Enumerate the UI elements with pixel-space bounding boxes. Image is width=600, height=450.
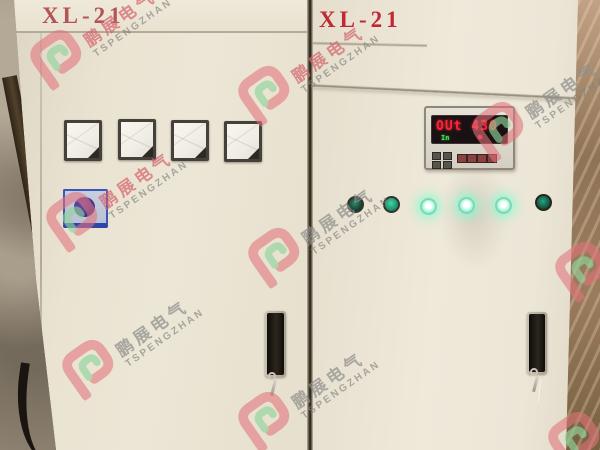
left-cabinet-model-label: XL-21: [42, 3, 125, 29]
right-door-key[interactable]: [530, 368, 538, 376]
controller-button[interactable]: [432, 152, 441, 160]
rotary-switch-knob[interactable]: [74, 197, 95, 217]
left-door-handle[interactable]: [265, 311, 286, 377]
indicator-light: [535, 194, 552, 211]
led-readout: OUt 430: [436, 119, 498, 134]
door-smudge: [439, 160, 509, 270]
analog-meter: [224, 121, 262, 162]
indicator-light: [458, 197, 475, 214]
controller-button[interactable]: [432, 161, 441, 169]
led-status-dot: [478, 135, 482, 139]
rotary-switch[interactable]: [63, 189, 108, 228]
indicator-light: [347, 196, 364, 213]
left-door-key[interactable]: [268, 372, 276, 380]
controller-button[interactable]: [443, 152, 452, 160]
cabinet-gap: [307, 0, 313, 450]
analog-meter: [171, 120, 209, 161]
indicator-light: [383, 196, 400, 213]
controller-button-red[interactable]: [457, 154, 467, 163]
indicator-light: [495, 197, 512, 214]
key-thread: [538, 380, 541, 402]
led-sub-indicator: In: [441, 134, 449, 142]
controller-button[interactable]: [443, 161, 452, 169]
indicator-light: [420, 198, 437, 215]
analog-meter: [118, 119, 156, 160]
controller-button-red[interactable]: [477, 154, 487, 163]
right-cabinet-model-label: XL-21: [319, 7, 402, 33]
right-door-handle[interactable]: [527, 312, 547, 374]
right-panel-seam-upper: [311, 42, 427, 47]
right-panel-seam-main: [311, 84, 579, 100]
controller-button-red[interactable]: [487, 154, 497, 163]
analog-meter: [64, 120, 102, 161]
led-display: OUt 430 In: [431, 115, 508, 144]
controller-button-red[interactable]: [467, 154, 477, 163]
photo-control-cabinets: XL-21 XL-21 OUt 430 In: [0, 0, 600, 450]
digital-temperature-controller[interactable]: OUt 430 In: [424, 106, 515, 170]
right-cabinet: XL-21 OUt 430 In: [311, 0, 600, 450]
